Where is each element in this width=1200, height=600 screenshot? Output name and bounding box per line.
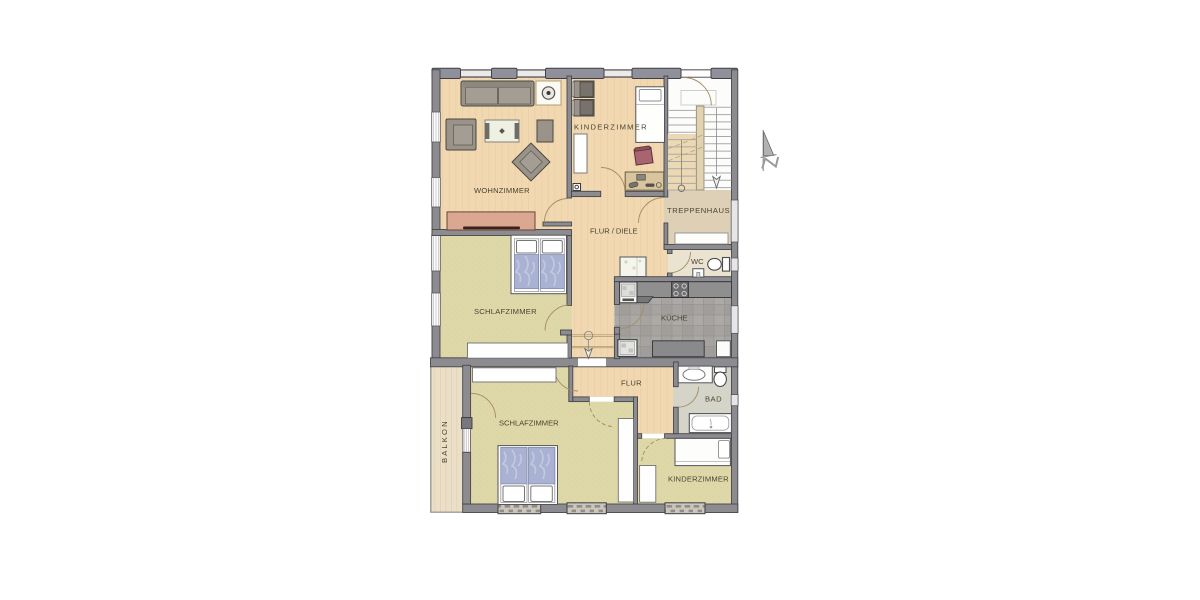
svg-text:WOHNZIMMER: WOHNZIMMER [474, 186, 530, 195]
svg-text:KINDERZIMMER: KINDERZIMMER [574, 123, 647, 132]
svg-text:KINDERZIMMER: KINDERZIMMER [668, 475, 729, 484]
svg-text:SCHLAFZIMMER: SCHLAFZIMMER [474, 307, 537, 316]
svg-text:BALKON: BALKON [440, 421, 449, 463]
svg-text:FLUR / DIELE: FLUR / DIELE [590, 227, 638, 236]
svg-text:FLUR: FLUR [621, 379, 642, 388]
svg-text:KÜCHE: KÜCHE [661, 314, 688, 323]
svg-text:TREPPENHAUS: TREPPENHAUS [667, 206, 730, 215]
svg-text:WC: WC [691, 257, 704, 266]
svg-text:SCHLAFZIMMER: SCHLAFZIMMER [499, 419, 559, 428]
svg-text:BAD: BAD [705, 395, 722, 404]
